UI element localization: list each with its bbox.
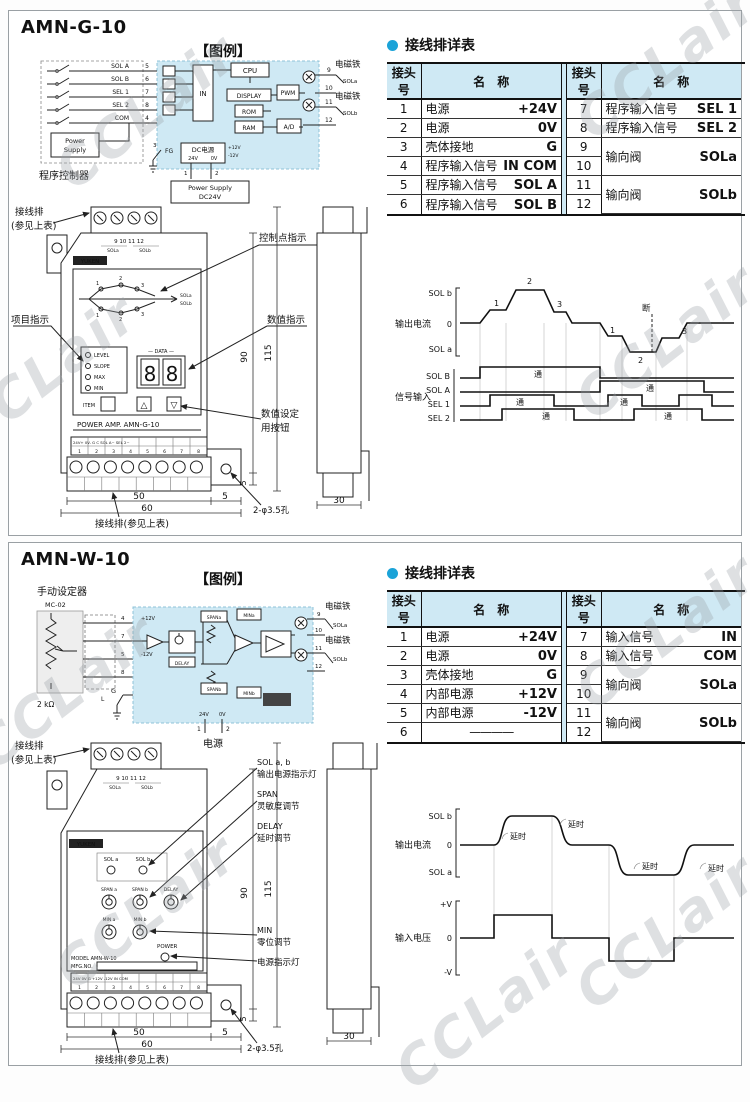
ground: G L (101, 687, 133, 719)
input-lines: SOL A5 SOL B6 SEL 17 SEL 28 COM4 (47, 63, 157, 124)
pin: 12 (325, 117, 333, 124)
dim-50: 50 (133, 1028, 145, 1038)
callout: 数值指示 (267, 314, 305, 326)
in-block: IN (199, 90, 206, 98)
delay-block: DELAY (175, 661, 190, 667)
dim-50: 50 (133, 492, 145, 502)
callout: 接线排 (15, 740, 44, 752)
table-row: 2电源0V (387, 646, 561, 665)
row-label: SEL 1 (428, 400, 450, 409)
dc-p12: +12V (228, 145, 241, 151)
callout: 数值设定 (261, 408, 300, 420)
table-row: 6———— (387, 722, 561, 741)
rom-block: ROM (242, 109, 256, 116)
input-wires (83, 623, 133, 677)
rail-p12: +12V (141, 616, 156, 622)
table-row: 1电源+24V (387, 627, 561, 646)
dim-90: 90 (240, 351, 250, 363)
solb-label: SOLb (139, 248, 151, 254)
table-row: 5程序输入信号SOL A (387, 175, 561, 194)
top-terminal-numbers: 9 10 11 12 (114, 239, 144, 245)
item-label: ITEM (83, 403, 95, 409)
model-text: MODEL AMN-W-10 (71, 956, 117, 962)
pwm-block: PWM (281, 90, 296, 97)
dc-m12: -12V (228, 153, 239, 159)
delay-label: 延时 (708, 863, 724, 873)
input-axis: +V 0 -V 输入电压 (395, 900, 460, 977)
off-mark: 断 (642, 303, 651, 314)
table-row: 7程序输入信号SEL 1 (567, 99, 741, 118)
row-label: SEL 2 (428, 414, 450, 423)
axis-label: SOL a (429, 345, 452, 354)
row-label: SOL B (426, 372, 450, 381)
controller-label: 程序控制器 (39, 169, 89, 182)
callout: 接线排 (15, 206, 44, 218)
model-title: AMN-G-10 (21, 17, 127, 38)
row-label: SOL A (426, 386, 450, 395)
pin: 10 (315, 628, 322, 634)
solenoid-name: SOLa (333, 623, 347, 629)
bottom-terminal-block (67, 457, 211, 491)
knob-label: DELAY (164, 887, 179, 893)
table-row: 4程序输入信号IN COM (387, 156, 561, 175)
line-label: SOL A (111, 63, 130, 70)
min-a-block: MINa (243, 613, 255, 619)
g10-front-view: 9 10 11 12 SOLa SOLb YUKEN 1 2 3 1 2 3 S… (9, 201, 409, 531)
axis-title: 输入电压 (395, 932, 431, 944)
table-row: 3壳体接地G (387, 137, 561, 156)
dim-5b: 5 (222, 492, 228, 502)
g-label: G (111, 687, 116, 695)
term-num: 8 (197, 985, 200, 991)
dc-power-block: DC电源 (192, 145, 215, 154)
bullet-icon (387, 568, 398, 579)
g10-timing-diagram: SOL b 0 SOL a 输出电流 1 2 3 1 2 3 断 信号输入 SO… (394, 266, 743, 466)
callout: 灵敏度调节 (257, 801, 300, 812)
pin: 2 (215, 171, 219, 177)
bottom-terminal-block (67, 993, 211, 1027)
sola-label: SOLa (107, 248, 119, 254)
callout: (参见上表) (11, 220, 56, 232)
brand-logo: YUKEN (80, 259, 100, 265)
w10-block-diagram: 手动设定器 MC-02 2 kΩ 4 7 5 8 +12V -12V (23, 583, 368, 753)
model-title: AMN-W-10 (21, 549, 130, 570)
pin: 12 (315, 664, 322, 670)
mark: 3 (557, 300, 562, 309)
table-left: 接头号 名 称 1电源+24V 2电源0V 3壳体接地G 4程序输入信号IN C… (387, 64, 561, 214)
line-label: SOL B (111, 76, 129, 83)
col-header: 接头号 (567, 592, 601, 627)
mark: 1 (494, 299, 499, 308)
led-label: SOL b (136, 857, 151, 863)
term-num: 3 (112, 449, 115, 455)
v24: 24V (199, 712, 209, 718)
callout: MIN (257, 926, 272, 935)
callout: 零位调节 (257, 937, 292, 948)
col-header: 名 称 (601, 64, 741, 99)
solenoid-outputs: 9 10 11 12 电磁铁 SOLa 电磁铁 SOLb (325, 59, 361, 124)
up-button-icon: △ (141, 401, 148, 411)
w10-timing-diagram: SOL b 0 SOL a 输出电流 延时 延时 延时 延时 +V 0 -V 输… (394, 783, 743, 1023)
data-label: — DATA — (148, 349, 174, 355)
power-supply-label: Supply (64, 146, 86, 154)
term-num: 6 (163, 985, 166, 991)
axis-label: +V (440, 900, 453, 909)
setter-label: 手动设定器 (37, 585, 87, 598)
table-row: 9输向阀SOLa (567, 665, 741, 684)
axis-label: SOL a (429, 868, 452, 877)
table-row: 11输向阀SOLb (567, 175, 741, 194)
term-num: 1 (78, 985, 81, 991)
pin: 9 (317, 612, 321, 618)
term-num: 7 (180, 985, 183, 991)
side-view: 30 (327, 743, 379, 1045)
solenoid-label: 电磁铁 (325, 601, 351, 612)
knob-label: SPAN b (132, 887, 148, 893)
on-mark: 通 (516, 397, 524, 407)
axis-label: 0 (447, 320, 452, 329)
led-label: SLOPE (94, 364, 110, 370)
cpu-block: CPU (243, 67, 257, 75)
term-num: 4 (129, 985, 132, 991)
axis-title: 输出电流 (395, 839, 431, 851)
mark: 3 (682, 327, 687, 336)
sola-label: SOLa (109, 785, 121, 791)
mark: 1 (610, 326, 615, 335)
led-label: LEVEL (94, 353, 110, 359)
dither-block (263, 693, 291, 706)
term-num: 5 (146, 985, 149, 991)
table-left: 接头号 名 称 1电源+24V 2电源0V 3壳体接地G 4内部电源+12V 5… (387, 592, 561, 742)
g10-block-diagram: SOL A5 SOL B6 SEL 17 SEL 28 COM4 Power S… (31, 57, 361, 209)
term-num: 4 (129, 449, 132, 455)
table-row: 4内部电源+12V (387, 684, 561, 703)
pin: 4 (145, 115, 149, 122)
term-num: 2 (95, 985, 98, 991)
point-label: 1 (96, 281, 99, 287)
table-title: 接线排详表 (405, 35, 475, 55)
l-label: L (101, 696, 105, 703)
led-label: MAX (94, 375, 106, 381)
pin: 1 (197, 726, 201, 733)
display-block: DISPLAY (237, 93, 262, 100)
callout: SPAN (257, 790, 278, 799)
signal-rows: 信号输入 SOL B SOL A SEL 1 SEL 2 通 通 通 通 通 通 (395, 367, 734, 423)
solb-label: SOLb (141, 785, 153, 791)
digit: 8 (166, 362, 179, 386)
solenoid-label: 电磁铁 (335, 91, 361, 102)
callout: 接线排(参见上表) (95, 518, 169, 530)
solb-label: SOLb (180, 301, 192, 307)
on-mark: 通 (620, 397, 628, 407)
resistance-label: 2 kΩ (37, 700, 54, 709)
callout: 电源指示灯 (257, 957, 300, 968)
callout: 输出电源指示灯 (257, 769, 317, 780)
table-right: 接头号 名 称 7输入信号IN 8输入信号COM 9输向阀SOLa 10 11输… (567, 592, 741, 742)
pin: 4 (121, 616, 125, 622)
term-num: 5 (146, 449, 149, 455)
dim-90: 90 (240, 887, 250, 899)
dc-0v: 0V (211, 156, 218, 162)
col-header: 接头号 (567, 64, 601, 99)
axis-labels: SOL b 0 SOL a 输出电流 (395, 288, 460, 356)
knob-label: MIN a (103, 917, 116, 923)
strip-labels: 24V+ 0V- G C SOL A~ SEL 2~ (73, 440, 130, 445)
col-header: 接头号 (387, 64, 421, 99)
table-row: 6程序输入信号SOL B (387, 194, 561, 213)
hole-callout: 2-φ3.5孔 (253, 506, 290, 516)
span-a-block: SPANa (207, 615, 222, 621)
table-row: 9输向阀SOLa (567, 137, 741, 156)
term-num: 7 (180, 449, 183, 455)
dim-115: 115 (264, 344, 274, 361)
table-title: 接线排详表 (405, 563, 475, 583)
term-num: 6 (163, 449, 166, 455)
solenoid-name: SOLb (333, 657, 348, 663)
pin: 7 (145, 89, 149, 96)
callout: DELAY (257, 822, 283, 831)
bullet-icon (387, 40, 398, 51)
dim-60: 60 (141, 504, 153, 514)
led-label: SOL a (104, 857, 119, 863)
strip-labels: 24V 0V G +12V -12V IN COM (73, 976, 128, 981)
supply-label: DC24V (199, 193, 222, 201)
table-row: 5内部电源-12V (387, 703, 561, 722)
solenoid-label: 电磁铁 (325, 635, 351, 646)
dim-30: 30 (343, 1032, 355, 1042)
col-header: 名 称 (421, 592, 561, 627)
pin: 11 (315, 646, 322, 652)
axis-label: 0 (447, 934, 452, 943)
point-label: 1 (96, 313, 99, 319)
pin: 8 (121, 670, 125, 676)
axis-label: -V (444, 968, 452, 977)
axis-labels: SOL b 0 SOL a 输出电流 (395, 809, 460, 877)
solenoid-label: 电磁铁 (335, 59, 361, 70)
table-right: 接头号 名 称 7程序输入信号SEL 1 8程序输入信号SEL 2 9输向阀SO… (567, 64, 741, 214)
brand-logo: YUKEN (76, 842, 96, 848)
col-header: 名 称 (601, 592, 741, 627)
table-row: 3壳体接地G (387, 665, 561, 684)
pin: 3 (153, 143, 157, 149)
dc-24v: 24V (188, 156, 198, 162)
point-label: 3 (141, 312, 144, 318)
table-row: 11输向阀SOLb (567, 703, 741, 722)
top-terminal-block (91, 743, 161, 769)
table-row: 2电源0V (387, 118, 561, 137)
axis-label: SOL b (429, 812, 452, 821)
pin: 2 (226, 726, 230, 733)
callout: SOL a, b (257, 758, 290, 767)
dim-115: 115 (264, 880, 274, 897)
dim-60: 60 (141, 1040, 153, 1050)
on-mark: 通 (646, 383, 654, 393)
table-row: 8输入信号COM (567, 646, 741, 665)
line-label: COM (115, 115, 129, 122)
callout: 用按钮 (261, 422, 290, 434)
power-led-label: POWER (157, 944, 178, 950)
delay-label: 延时 (642, 861, 658, 871)
col-header: 接头号 (387, 592, 421, 627)
point-label: 2 (119, 276, 122, 282)
point-label: 3 (141, 283, 144, 289)
table-row: 1电源+24V (387, 99, 561, 118)
top-terminal-block (91, 207, 161, 233)
delay-label: 延时 (510, 831, 526, 841)
pin: 6 (145, 76, 149, 83)
pin: 7 (121, 634, 125, 640)
ad-block: A/D (284, 124, 295, 131)
w10-terminal-table: 接线排详表 接头号 名 称 1电源+24V 2电源0V 3壳体接地G 4内部电源… (387, 563, 745, 744)
callout: (参见上表) (11, 754, 56, 766)
callout: 控制点指示 (259, 232, 307, 244)
on-mark: 通 (542, 411, 550, 421)
pin: 5 (145, 63, 149, 70)
term-num: 1 (78, 449, 81, 455)
callout: 接线排(参见上表) (95, 1054, 169, 1066)
axis-title: 输出电流 (395, 318, 431, 330)
dim-5b: 5 (222, 1028, 228, 1038)
callout: 延时调节 (257, 833, 292, 844)
table-row: 7输入信号IN (567, 627, 741, 646)
term-num: 8 (197, 449, 200, 455)
down-button-icon: ▽ (171, 401, 178, 411)
top-terminal-numbers: 9 10 11 12 (116, 776, 146, 782)
pin: 10 (325, 85, 333, 92)
solenoid-name: SOLa (343, 79, 357, 85)
g10-terminal-table: 接线排详表 接头号 名 称 1电源+24V 2电源0V 3壳体接地G 4程序输入… (387, 35, 745, 216)
mark: 2 (527, 277, 532, 286)
delay-label: 延时 (568, 819, 584, 829)
dim-30: 30 (333, 496, 345, 506)
line-label: SEL 2 (112, 102, 129, 109)
supply-label: Power Supply (188, 184, 232, 192)
term-num: 3 (112, 985, 115, 991)
pin: 8 (145, 102, 149, 109)
table-row: 8程序输入信号SEL 2 (567, 118, 741, 137)
on-mark: 通 (534, 369, 542, 379)
v0: 0V (219, 712, 226, 718)
pin: 11 (325, 99, 333, 106)
line-label: SEL 1 (112, 89, 129, 96)
col-header: 名 称 (421, 64, 561, 99)
axis-label: 0 (447, 841, 452, 850)
term-num: 2 (95, 449, 98, 455)
knob-label: MIN b (134, 917, 147, 923)
power-supply-label: Power (65, 137, 85, 145)
pin: 1 (184, 171, 188, 177)
sola-label: SOLa (180, 293, 192, 299)
axis-label: SOL b (429, 289, 452, 298)
mark: 2 (638, 356, 643, 365)
on-mark: 通 (664, 411, 672, 421)
datasheet-page: { "watermark": {"text": "CCLair"}, "g10"… (0, 0, 750, 1072)
hole-callout: 2-φ3.5孔 (247, 1044, 284, 1054)
section-amn-g-10: AMN-G-10 【图例】 SOL A5 SOL B6 SEL 17 SEL 2… (8, 10, 742, 536)
solenoid-name: SOLb (343, 111, 358, 117)
pin: 9 (327, 67, 331, 74)
fg-label: FG (165, 148, 173, 155)
callout: 项目指示 (11, 314, 49, 326)
span-b-block: SPANb (207, 687, 222, 693)
section-amn-w-10: AMN-W-10 【图例】 手动设定器 MC-02 2 kΩ 4 7 5 8 +… (8, 542, 742, 1066)
led-label: MIN (94, 386, 104, 392)
digit: 8 (144, 362, 157, 386)
point-label: 2 (119, 317, 122, 323)
ram-block: RAM (242, 125, 255, 132)
setter-model: MC-02 (45, 601, 66, 609)
knob-label: SPAN a (101, 887, 117, 893)
mfg-text: MFG.NO. (71, 964, 93, 970)
pin: 5 (121, 652, 125, 658)
w10-front-view: 9 10 11 12 SOLa SOLb YUKEN SOL a SOL b S… (9, 735, 409, 1067)
rail-m12: -12V (141, 652, 153, 658)
side-view: 30 (317, 207, 369, 509)
min-b-block: MINb (243, 691, 255, 697)
panel-caption: POWER AMP. AMN-G-10 (77, 421, 159, 429)
